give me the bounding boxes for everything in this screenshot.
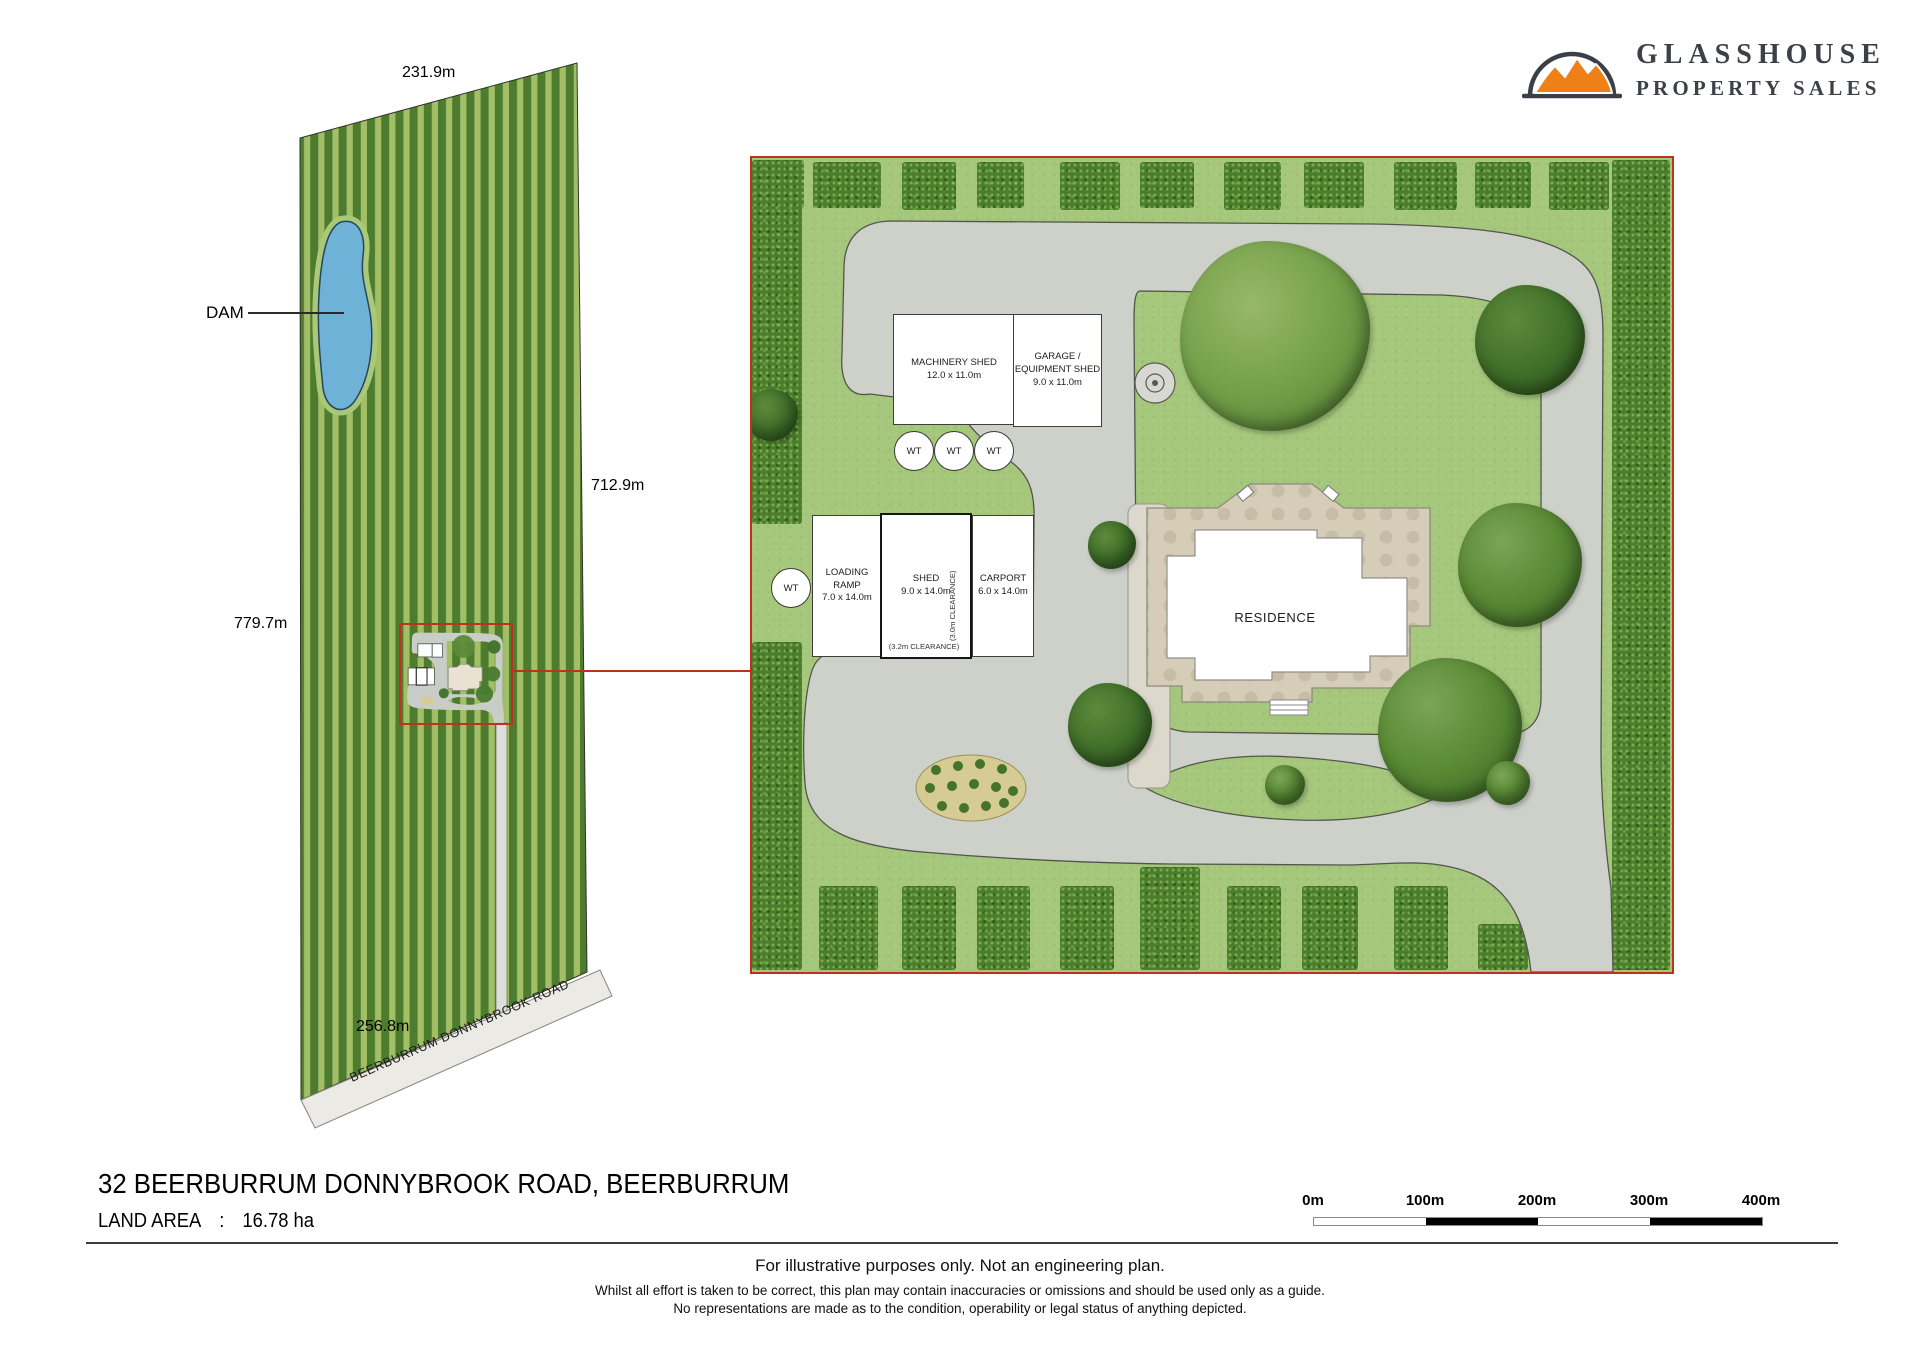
disclaimer-line-2: Whilst all effort is taken to be correct… [0,1283,1920,1298]
land-area-label: LAND AREA [98,1210,201,1232]
carport-size: 6.0 x 14.0m [978,586,1028,599]
land-area: LAND AREA : 16.78 ha [98,1210,327,1233]
brand-name: GLASSHOUSE PROPERTY SALES [1636,39,1886,101]
machinery-shed: MACHINERY SHED 12.0 x 11.0m [893,314,1015,425]
lot-overview-plan: BEERBURRUM DONNYBROOK ROAD [296,60,626,1140]
dam-label: DAM [206,303,244,323]
shed: SHED 9.0 x 14.0m [880,513,972,659]
water-tank-wt: WT [974,431,1014,471]
carport: CARPORT 6.0 x 14.0m [972,515,1034,657]
shed-size: 9.0 x 14.0m [901,586,951,599]
site-plan-page: GLASSHOUSE PROPERTY SALES BEERBURRUM DON… [0,0,1920,1357]
brand-name-line2: PROPERTY SALES [1636,76,1886,101]
wt-label: WT [947,446,962,457]
garage-size: 9.0 x 11.0m [1033,377,1082,390]
dam-leader-line [248,312,344,314]
garage-equipment-shed: GARAGE / EQUIPMENT SHED 9.0 x 11.0m [1013,314,1102,427]
residence-label: RESIDENCE [1195,610,1355,625]
carport-name: CARPORT [980,573,1026,586]
property-address: 32 BEERBURRUM DONNYBROOK ROAD, BEERBURRU… [98,1168,789,1200]
machinery-shed-name: MACHINERY SHED [911,357,997,370]
loading-ramp-size: 7.0 x 14.0m [822,592,872,605]
glasshouse-mountains-icon [1522,30,1622,110]
wt-label: WT [784,583,799,594]
dim-left: 779.7m [234,615,287,633]
garage-name-1: GARAGE / [1035,351,1081,364]
garage-name-2: EQUIPMENT SHED [1015,364,1100,377]
inset-connector-line [511,670,750,672]
machinery-shed-size: 12.0 x 11.0m [927,370,981,383]
disclaimer-line-3: No representations are made as to the co… [0,1301,1920,1316]
scale-tick-0: 0m [1302,1192,1324,1209]
shed-bottom-clearance: (3.2m CLEARANCE) [880,642,968,651]
water-tank-round [1135,363,1175,403]
dim-right: 712.9m [591,477,644,495]
land-area-sep: : [219,1210,224,1232]
footer-divider [86,1242,1838,1244]
brand-logo: GLASSHOUSE PROPERTY SALES [1522,30,1886,110]
homestead-detail-plan: MACHINERY SHED 12.0 x 11.0m GARAGE / EQU… [750,156,1674,974]
dim-top: 231.9m [402,64,455,82]
scale-tick-300: 300m [1630,1192,1668,1209]
scale-tick-100: 100m [1406,1192,1444,1209]
homestead-inset-box [399,623,513,725]
scale-tick-200: 200m [1518,1192,1556,1209]
scale-bar: 0m 100m 200m 300m 400m [1308,1192,1778,1234]
scale-tick-400: 400m [1742,1192,1780,1209]
loading-ramp-name: LOADING RAMP [813,567,881,593]
water-tank-wt: WT [894,431,934,471]
scale-bar-segments [1313,1217,1763,1226]
dim-bottom: 256.8m [356,1018,409,1036]
homestead-mini-plan [401,625,511,723]
lot-driveway [496,723,507,1015]
brand-name-line1: GLASSHOUSE [1636,39,1886,71]
water-tank-wt: WT [934,431,974,471]
shed-side-clearance: (3.0m CLEARANCE) [948,526,957,641]
shed-name: SHED [913,573,939,586]
dam [318,221,371,409]
wt-label: WT [987,446,1002,457]
disclaimer-line-1: For illustrative purposes only. Not an e… [0,1256,1920,1276]
wt-label: WT [907,446,922,457]
loading-ramp: LOADING RAMP 7.0 x 14.0m [812,515,882,657]
land-area-value: 16.78 ha [242,1210,314,1232]
front-steps [1270,700,1308,715]
water-tank-wt: WT [771,568,811,608]
